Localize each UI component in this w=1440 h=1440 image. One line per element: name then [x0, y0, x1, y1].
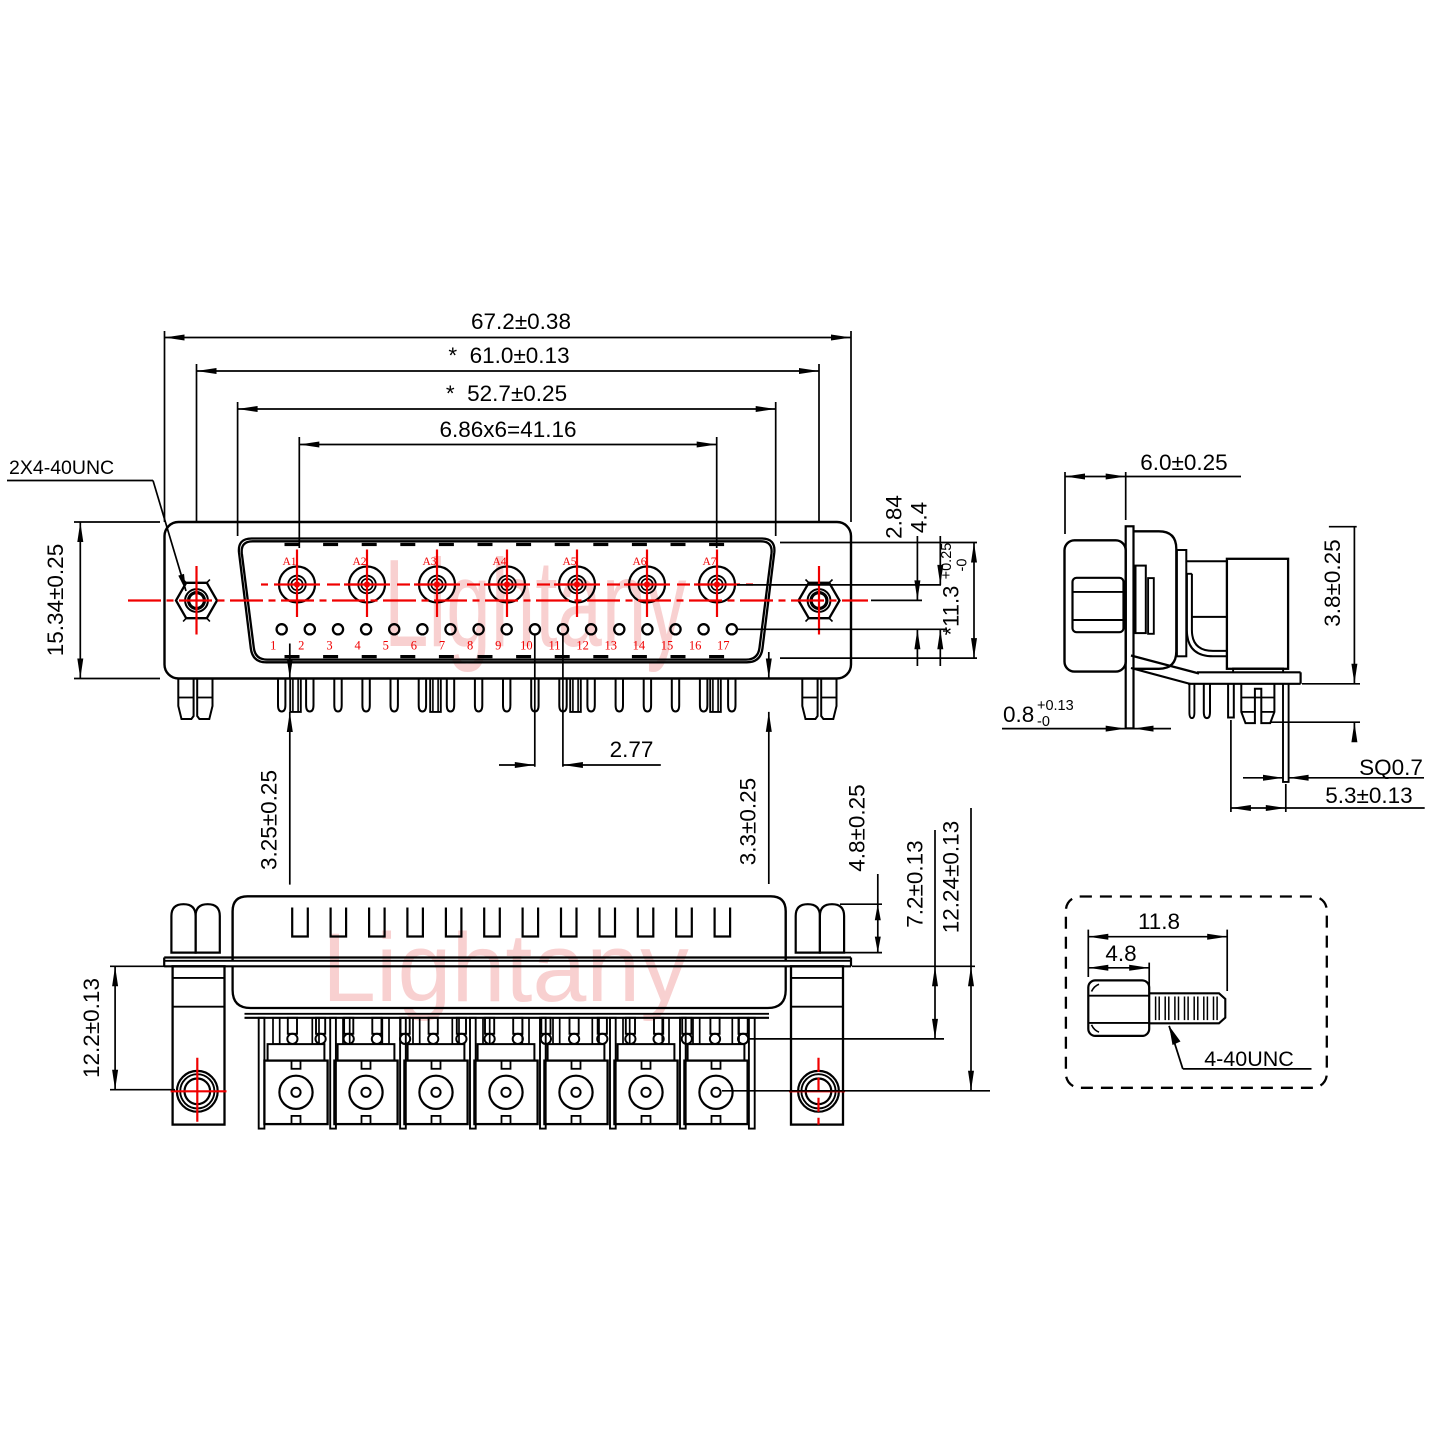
svg-text:5: 5 [383, 639, 389, 653]
svg-text:7: 7 [439, 639, 445, 653]
svg-text:17: 17 [717, 639, 730, 653]
svg-text:3.8±0.25: 3.8±0.25 [1320, 539, 1345, 626]
svg-text:+0.25: +0.25 [939, 543, 955, 580]
svg-text:2X4-40UNC: 2X4-40UNC [9, 457, 114, 479]
svg-text:14: 14 [633, 639, 646, 653]
svg-text:+0.13: +0.13 [1037, 698, 1074, 714]
svg-text:3: 3 [326, 639, 332, 653]
svg-text:A5: A5 [562, 556, 576, 568]
svg-text:10: 10 [520, 639, 533, 653]
svg-text:0.8: 0.8 [1003, 702, 1034, 727]
svg-text:12.2±0.13: 12.2±0.13 [79, 978, 104, 1078]
svg-text:4-40UNC: 4-40UNC [1204, 1047, 1294, 1071]
svg-text:9: 9 [495, 639, 501, 653]
svg-text:4.8: 4.8 [1105, 941, 1136, 966]
svg-text:15.34±0.25: 15.34±0.25 [43, 544, 68, 656]
svg-text:4.4: 4.4 [907, 502, 932, 533]
svg-text:4: 4 [354, 639, 361, 653]
svg-text:*11.3: *11.3 [939, 586, 964, 636]
svg-text:13: 13 [605, 639, 618, 653]
svg-text:15: 15 [661, 639, 674, 653]
svg-text:A7: A7 [702, 556, 716, 568]
svg-text:8: 8 [467, 639, 473, 653]
svg-text:7.2±0.13: 7.2±0.13 [903, 840, 928, 927]
svg-text:12: 12 [576, 639, 589, 653]
svg-text:* 61.0±0.13: * 61.0±0.13 [448, 343, 569, 368]
svg-text:11.8: 11.8 [1138, 909, 1180, 934]
svg-text:-0: -0 [955, 559, 971, 572]
svg-text:Lightany: Lightany [322, 913, 689, 1022]
svg-text:2: 2 [298, 639, 304, 653]
svg-text:3.25±0.25: 3.25±0.25 [257, 770, 282, 870]
svg-text:5.3±0.13: 5.3±0.13 [1325, 783, 1412, 808]
svg-text:16: 16 [689, 639, 702, 653]
svg-text:A6: A6 [632, 556, 646, 568]
svg-text:A2: A2 [352, 556, 366, 568]
svg-text:6.86x6=41.16: 6.86x6=41.16 [440, 417, 577, 442]
svg-text:3.3±0.25: 3.3±0.25 [735, 778, 760, 865]
svg-text:A3: A3 [422, 556, 436, 568]
svg-text:2.77: 2.77 [610, 737, 654, 762]
svg-text:6.0±0.25: 6.0±0.25 [1140, 450, 1227, 475]
svg-text:* 52.7±0.25: * 52.7±0.25 [446, 381, 567, 406]
svg-text:4.8±0.25: 4.8±0.25 [845, 784, 870, 871]
svg-text:2.84: 2.84 [882, 495, 907, 539]
svg-text:12.24±0.13: 12.24±0.13 [939, 821, 964, 933]
svg-text:11: 11 [548, 639, 560, 653]
svg-text:1: 1 [270, 639, 276, 653]
svg-text:67.2±0.38: 67.2±0.38 [471, 309, 571, 334]
svg-text:A1: A1 [282, 556, 296, 568]
svg-text:A4: A4 [492, 556, 506, 568]
svg-text:SQ0.7: SQ0.7 [1359, 755, 1423, 780]
svg-text:-0: -0 [1037, 714, 1050, 730]
svg-text:6: 6 [411, 639, 417, 653]
